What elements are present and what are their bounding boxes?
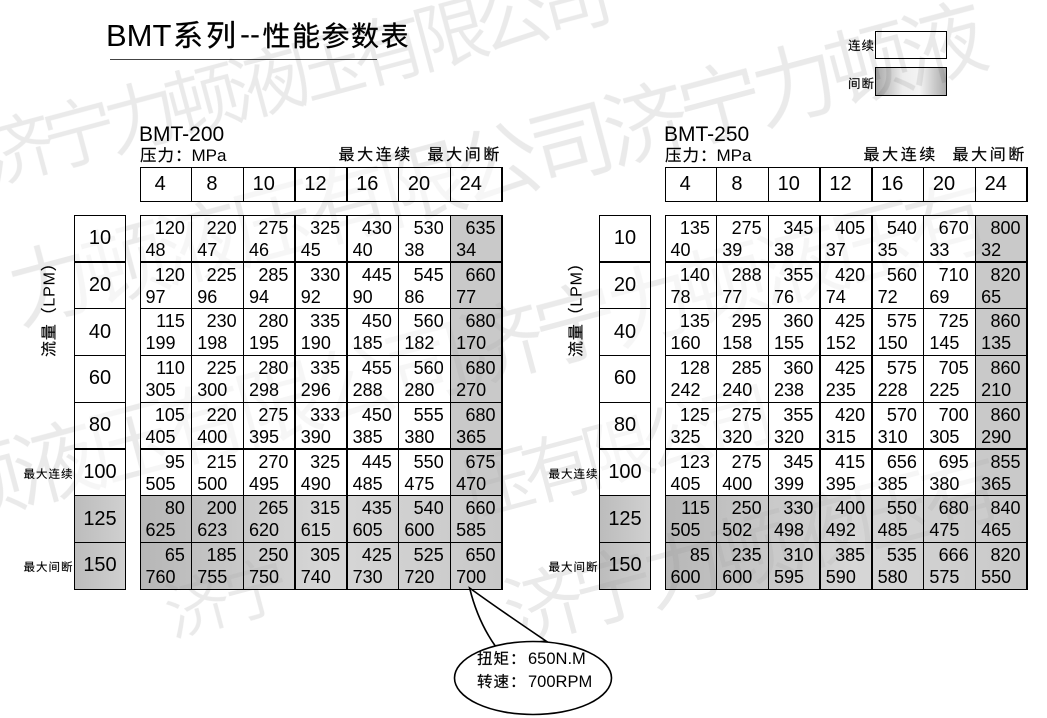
svg-text:--: -- [240, 18, 260, 51]
svg-text:700RPM: 700RPM [528, 673, 592, 691]
svg-text:MPa: MPa [192, 146, 228, 165]
svg-text:650N.M: 650N.M [528, 650, 586, 668]
svg-text:M: M [42, 272, 59, 285]
svg-text:P: P [569, 286, 586, 297]
svg-text:P: P [42, 286, 59, 297]
svg-text:L: L [42, 298, 59, 307]
svg-text:MPa: MPa [717, 146, 753, 165]
svg-text:BMT: BMT [106, 18, 172, 53]
svg-text:L: L [569, 298, 586, 307]
svg-text:M: M [569, 272, 586, 285]
